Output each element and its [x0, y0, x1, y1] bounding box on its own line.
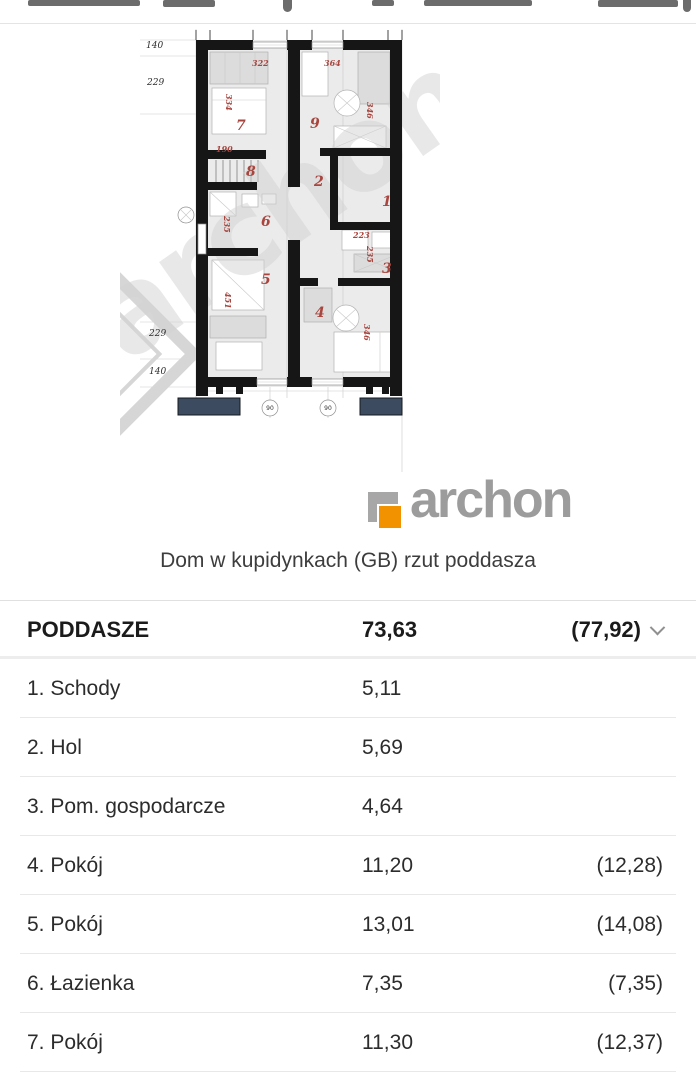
table-row: 1. Schody 5,11 [0, 659, 696, 718]
room-name: 7. Pokój [27, 1031, 362, 1055]
room-area: 11,20 [362, 854, 547, 878]
svg-text:90: 90 [324, 405, 332, 412]
logo-wordmark: archon [410, 470, 571, 530]
svg-text:140: 140 [146, 41, 163, 51]
table-header-row-poddasze[interactable]: PODDASZE 73,63 (77,92) [0, 601, 696, 659]
room-name: 2. Hol [27, 736, 362, 760]
room-gross: (7,35) [547, 972, 663, 996]
room-area: 7,35 [362, 972, 547, 996]
room-gross: (12,28) [547, 854, 663, 878]
page: archon [0, 0, 696, 1080]
room-gross: (14,08) [547, 913, 663, 937]
table-row: 2. Hol 5,69 [0, 718, 696, 777]
table-row: 5. Pokój 13,01 (14,08) [0, 895, 696, 954]
dimension-ticks [196, 30, 402, 40]
floor-plan-image: archon [120, 26, 440, 472]
table-row: 7. Pokój 11,30 (12,37) [0, 1013, 696, 1072]
svg-text:5: 5 [261, 272, 271, 288]
room-area: 13,01 [362, 913, 547, 937]
svg-text:346: 346 [362, 324, 372, 341]
plan-caption: Dom w kupidynkach (GB) rzut poddasza [0, 549, 696, 573]
room-area: 5,11 [362, 677, 547, 701]
svg-text:346: 346 [365, 102, 375, 119]
figure-top-border [0, 23, 696, 24]
svg-text:7: 7 [236, 118, 246, 134]
room-name: 5. Pokój [27, 913, 362, 937]
svg-text:229: 229 [146, 78, 164, 88]
room-name: 4. Pokój [27, 854, 362, 878]
svg-text:322: 322 [252, 58, 269, 68]
svg-text:3: 3 [382, 261, 392, 277]
svg-text:2: 2 [313, 174, 324, 190]
room-name: 6. Łazienka [27, 972, 362, 996]
table-row: 3. Pom. gospodarcze 4,64 [0, 777, 696, 836]
room-area-table: PODDASZE 73,63 (77,92) 1. Schody 5,11 2.… [0, 600, 696, 1072]
svg-text:451: 451 [223, 292, 233, 309]
floor-area-total: 73,63 [362, 617, 547, 643]
table-row: 6. Łazienka 7,35 (7,35) [0, 954, 696, 1013]
svg-text:334: 334 [224, 94, 234, 111]
room-area: 4,64 [362, 795, 547, 819]
svg-text:6: 6 [261, 214, 271, 230]
room-area: 11,30 [362, 1031, 547, 1055]
svg-text:229: 229 [148, 329, 166, 339]
svg-text:223: 223 [352, 230, 370, 240]
svg-text:8: 8 [246, 164, 256, 180]
terrace-elements [178, 398, 402, 415]
floor-gross-total: (77,92) [571, 617, 641, 643]
table-row: 4. Pokój 11,20 (12,28) [0, 836, 696, 895]
svg-text:9: 9 [310, 116, 320, 132]
svg-text:1: 1 [382, 194, 392, 210]
svg-text:140: 140 [149, 367, 166, 377]
chevron-down-icon[interactable] [650, 619, 666, 635]
room-gross: (12,37) [547, 1031, 663, 1055]
svg-text:235: 235 [222, 215, 232, 233]
svg-text:235: 235 [365, 245, 375, 263]
svg-text:190: 190 [216, 144, 233, 154]
logo-orange-square-icon [377, 504, 403, 530]
svg-text:90: 90 [266, 405, 274, 412]
room-area: 5,69 [362, 736, 547, 760]
svg-text:4: 4 [315, 305, 325, 321]
room-name: 3. Pom. gospodarcze [27, 795, 362, 819]
floor-name: PODDASZE [27, 617, 362, 643]
svg-text:364: 364 [324, 58, 341, 68]
room-name: 1. Schody [27, 677, 362, 701]
